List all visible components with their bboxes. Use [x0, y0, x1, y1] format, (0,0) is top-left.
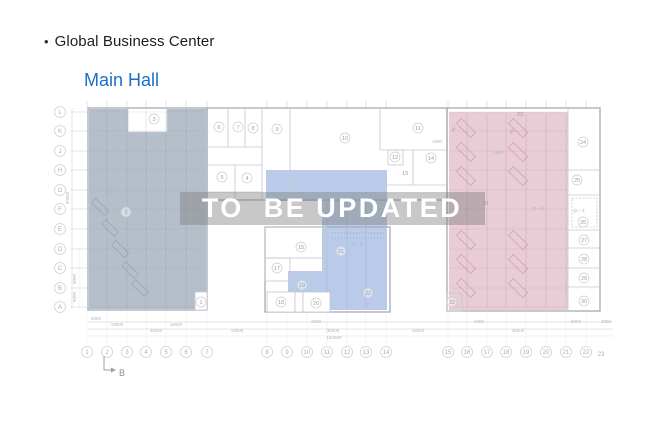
room-label: 20 — [313, 301, 319, 307]
axis-column-label: 13 — [363, 350, 370, 356]
dim-label: 1900 — [432, 139, 443, 144]
room-label: 4 — [245, 176, 248, 182]
axis-column-label: 4 — [144, 350, 148, 356]
dim-label: 1000 — [474, 319, 485, 324]
axis-column-label: 19 — [523, 350, 530, 356]
axis-column-label: 23 — [598, 352, 605, 358]
dim-label-vertical: 6000 — [72, 273, 77, 284]
room-label: 8 — [251, 126, 254, 132]
dim-label: 18000 — [231, 328, 244, 333]
dim-label-vertical: 6000 — [72, 291, 77, 302]
room-label: 28 — [581, 257, 587, 263]
axis-column-label: 14 — [383, 350, 390, 356]
column-axis-labels: 1234567891011121314151617181920212223 — [82, 347, 605, 359]
room-label: 25 — [574, 178, 580, 184]
dim-label: 3000 — [601, 319, 612, 324]
room-label: 32 — [449, 300, 455, 306]
axis-column-label: 5 — [164, 350, 168, 356]
room-label: 17 — [274, 266, 280, 272]
floor-plan: 1234567891011121314151617181920212223 LK… — [0, 0, 660, 440]
axis-row-label: L — [58, 110, 62, 116]
dim-label-vertical: 60000 — [65, 191, 70, 204]
room-label: 19 — [299, 283, 305, 289]
dim-label: 18400 — [412, 328, 425, 333]
axis-row-label: C — [58, 266, 63, 272]
dim-label: 1900 — [493, 150, 504, 155]
room-label: 22 — [365, 291, 371, 297]
axis-column-label: 20 — [543, 350, 550, 356]
axis-row-label: F — [58, 207, 62, 213]
section-marker: B — [104, 356, 125, 378]
dim-label: 6000 — [91, 316, 102, 321]
dim-label: 2000 — [311, 319, 322, 324]
axis-column-label: 11 — [324, 350, 331, 356]
axis-column-label: 3 — [125, 350, 129, 356]
room-label: 1 — [199, 300, 202, 306]
watermark-text: TO BE UPDATED — [202, 193, 463, 223]
axis-column-label: 6 — [184, 350, 188, 356]
axis-column-label: 22 — [583, 350, 590, 356]
dim-label: 36000 — [150, 328, 163, 333]
dim-label: 45000 — [512, 328, 525, 333]
axis-column-label: 15 — [445, 350, 452, 356]
room-label: 29 — [581, 276, 587, 282]
axis-column-label: 18 — [503, 350, 510, 356]
room-label: 21 — [338, 249, 344, 255]
axis-row-label: J — [59, 149, 62, 155]
dim-label: 36000 — [327, 328, 340, 333]
axis-column-label: 16 — [464, 350, 471, 356]
zone-capacity-label: Q = 3 — [573, 208, 585, 213]
dim-label: 18000 — [170, 322, 183, 327]
room-label: 9 — [275, 127, 278, 133]
room-label: 12 — [392, 155, 398, 161]
room-label: 26 — [580, 220, 586, 226]
axis-column-label: 17 — [484, 350, 491, 356]
axis-column-label: 12 — [344, 350, 351, 356]
axis-column-label: 8 — [265, 350, 269, 356]
axis-row-label: A — [58, 305, 62, 311]
room-label: 3 — [152, 117, 155, 123]
axis-column-label: 2 — [105, 350, 109, 356]
zone-capacity-label: Q = 3 — [107, 189, 119, 194]
room-label: 14 — [428, 156, 434, 162]
dim-label: 18000 — [111, 322, 124, 327]
room-label: 11 — [415, 126, 421, 132]
arrow-icon — [111, 368, 116, 373]
axis-column-label: 9 — [285, 350, 289, 356]
section-marker-label: B — [119, 368, 125, 378]
dim-label: 6000 — [571, 319, 582, 324]
room-label: 24 — [580, 140, 586, 146]
room-label: 10 — [342, 136, 348, 142]
axis-column-label: 7 — [205, 350, 209, 356]
zone-capacity-label: Q = 3 — [351, 241, 363, 246]
axis-row-label: B — [58, 286, 62, 292]
dim-label: 152869 — [326, 335, 342, 340]
axis-row-label: H — [58, 168, 62, 174]
room-label: 15 — [298, 245, 304, 251]
axis-row-label: D — [58, 247, 63, 253]
axis-column-label: 10 — [304, 350, 311, 356]
room-label: 5 — [220, 175, 223, 181]
zone-capacity-label: Q = 3 — [532, 206, 544, 211]
room-label: 27 — [581, 238, 587, 244]
room-label: 18 — [278, 300, 284, 306]
room-label: 6 — [217, 125, 220, 131]
row-axis-labels: LKJHGFEDCBA — [55, 107, 66, 313]
axis-column-label: 1 — [85, 350, 89, 356]
room-label: 2 — [124, 210, 127, 216]
room-label: 30 — [581, 299, 587, 305]
axis-column-label: 21 — [563, 350, 570, 356]
room-label: 13 — [402, 171, 408, 177]
axis-row-label: K — [58, 129, 62, 135]
watermark: TO BE UPDATED — [180, 192, 485, 225]
room-label: 23 — [517, 112, 523, 118]
axis-row-label: E — [58, 227, 62, 233]
room-label: 7 — [236, 125, 239, 131]
dim-label: 2000 — [95, 213, 106, 218]
axis-row-label: G — [58, 188, 63, 194]
